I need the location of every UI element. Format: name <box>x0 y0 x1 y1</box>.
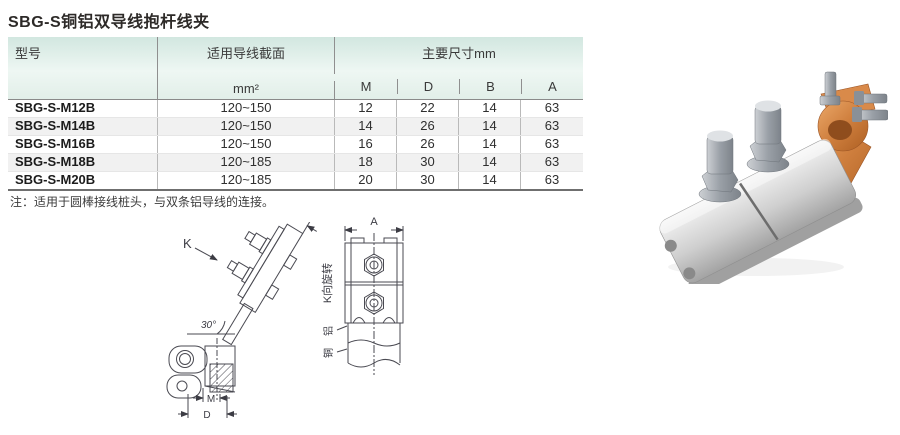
table-row: SBG-S-M12B 120~150 12 22 14 63 <box>8 100 583 118</box>
table-body: SBG-S-M12B 120~150 12 22 14 63 SBG-S-M14… <box>8 100 583 191</box>
angle-label: 30° <box>201 320 216 331</box>
table-row: SBG-S-M18B 120~185 18 30 14 63 <box>8 154 583 172</box>
cell-section: 120~185 <box>158 154 335 171</box>
header-dims-group: 主要尺寸mm <box>335 37 583 74</box>
cell-m: 12 <box>335 100 397 117</box>
header-dim-a: A <box>521 79 583 94</box>
drawing-k-view: A <box>320 213 425 423</box>
cell-a: 63 <box>521 118 583 135</box>
drawing-side-view: B 30° K <box>155 222 325 435</box>
aluminum-label: 铝 <box>323 326 335 336</box>
cell-m: 18 <box>335 154 397 171</box>
cell-model: SBG-S-M20B <box>8 172 158 189</box>
header-model: 型号 <box>8 37 158 99</box>
header-dim-d: D <box>397 79 459 94</box>
cell-model: SBG-S-M18B <box>8 154 158 171</box>
cell-a: 63 <box>521 154 583 171</box>
table-row: SBG-S-M16B 120~150 16 26 14 63 <box>8 136 583 154</box>
table-row: SBG-S-M20B 120~185 20 30 14 63 <box>8 172 583 189</box>
spec-table: 型号 适用导线截面 主要尺寸mm mm² M D B A SBG-S-M12B … <box>8 37 583 191</box>
k-rotation-label: K向旋转 <box>320 263 334 303</box>
table-note: 注：适用于圆棒接线桩头，与双条铝导线的连接。 <box>10 193 274 210</box>
page-title: SBG-S铜铝双导线抱杆线夹 <box>8 8 210 32</box>
cell-d: 22 <box>397 100 459 117</box>
cell-b: 14 <box>459 136 521 153</box>
clamp-bolt <box>747 101 789 173</box>
clamp-bolt <box>699 131 741 203</box>
cell-d: 26 <box>397 136 459 153</box>
dim-label-d: D <box>203 410 210 421</box>
cell-a: 63 <box>521 136 583 153</box>
cell-b: 14 <box>459 118 521 135</box>
cell-model: SBG-S-M14B <box>8 118 158 135</box>
cell-m: 14 <box>335 118 397 135</box>
cell-a: 63 <box>521 100 583 117</box>
cell-m: 16 <box>335 136 397 153</box>
dim-label-a: A <box>370 216 378 228</box>
copper-label: 铜 <box>323 348 335 358</box>
table-row: SBG-S-M14B 120~150 14 26 14 63 <box>8 118 583 136</box>
cell-b: 14 <box>459 172 521 189</box>
cell-m: 20 <box>335 172 397 189</box>
cell-section: 120~150 <box>158 118 335 135</box>
cell-section: 120~185 <box>158 172 335 189</box>
cell-b: 14 <box>459 100 521 117</box>
header-section-unit: mm² <box>158 81 335 99</box>
cell-a: 63 <box>521 172 583 189</box>
cell-section: 120~150 <box>158 136 335 153</box>
cell-model: SBG-S-M12B <box>8 100 158 117</box>
cell-d: 30 <box>397 172 459 189</box>
cell-section: 120~150 <box>158 100 335 117</box>
table-header: 型号 适用导线截面 主要尺寸mm mm² M D B A <box>8 37 583 100</box>
k-view-label: K <box>183 236 192 251</box>
cell-d: 30 <box>397 154 459 171</box>
dim-label-m: M <box>207 394 215 405</box>
product-photo <box>656 64 888 289</box>
header-dim-b: B <box>459 79 521 94</box>
cell-d: 26 <box>397 118 459 135</box>
header-section: 适用导线截面 <box>158 37 335 74</box>
cell-b: 14 <box>459 154 521 171</box>
catalog-page: SBG-S铜铝双导线抱杆线夹 型号 适用导线截面 主要尺寸mm mm² M D … <box>0 0 900 435</box>
header-dim-m: M <box>335 79 397 94</box>
cell-model: SBG-S-M16B <box>8 136 158 153</box>
